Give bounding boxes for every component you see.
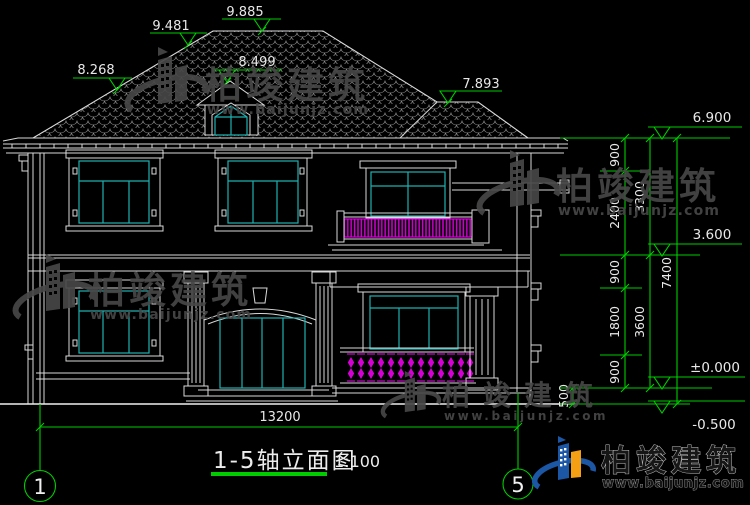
level-ground-text: ±0.000 <box>690 360 740 376</box>
level-second-floor: 3.600 <box>648 227 742 256</box>
title-underline <box>211 472 327 476</box>
corbel-right-3 <box>531 345 541 362</box>
dim-left-upper: 9.481 <box>152 19 189 34</box>
watermark-url: www.baijunjz.com <box>558 203 720 219</box>
entrance-steps <box>186 390 338 401</box>
watermark-bottom: 柏竣建筑 www.baijunjz.com <box>383 371 608 423</box>
logo-tower-orange <box>571 450 581 478</box>
balcony-door-2f <box>360 161 456 218</box>
level-site: -0.500 <box>648 401 745 433</box>
brand-name: 柏竣建筑 <box>601 444 741 479</box>
corbel-right-1 <box>531 210 541 227</box>
cad-elevation-canvas: 9.885 9.481 8.268 8.499 7.893 <box>0 0 750 505</box>
watermark-left: 柏竣建筑 www.baijunjz.com <box>16 254 253 323</box>
pilaster-capital-right <box>312 272 336 283</box>
corbel-right-2 <box>531 283 541 300</box>
watermark-logo-icon <box>480 150 558 213</box>
dim-900-top: 900 <box>607 143 622 167</box>
window-2f-mid <box>215 150 312 231</box>
window-2f-left <box>66 150 163 231</box>
level-2f-text: 3.600 <box>693 227 732 243</box>
watermark-logo-icon <box>16 254 94 317</box>
dim-900-mid: 900 <box>607 260 622 284</box>
dim-left-lower: 8.268 <box>77 63 114 78</box>
corbel-left-top <box>19 155 28 171</box>
corbel-left-base <box>25 345 33 359</box>
level-ground: ±0.000 <box>648 360 745 389</box>
level-eave: 6.900 <box>648 110 742 139</box>
keystone <box>253 288 267 303</box>
brand-url: www.baijunjz.com <box>602 476 744 491</box>
dim-ridge: 9.885 <box>226 5 263 20</box>
dim-3600: 3600 <box>632 306 647 338</box>
window-1f-porch <box>358 284 470 352</box>
level-site-text: -0.500 <box>692 417 736 433</box>
brand-logo-color: 柏竣建筑 www.baijunjz.com <box>535 436 745 491</box>
watermark-brand: 柏竣建筑 <box>442 379 606 412</box>
drawing-scale: 1:100 <box>334 452 380 471</box>
watermark-brand: 柏竣建筑 <box>205 64 369 107</box>
elevation-drawing: 9.885 9.481 8.268 8.499 7.893 <box>0 0 750 505</box>
dim-900-bottom: 900 <box>607 360 622 384</box>
axis-1-label: 1 <box>33 475 46 499</box>
dim-7400: 7400 <box>659 257 674 289</box>
title-block: 1-5轴立面图 1:100 <box>211 448 380 476</box>
watermark-url: www.baijunjz.com <box>444 409 608 423</box>
axis-5-label: 5 <box>511 473 524 497</box>
watermark-right: 柏竣建筑 www.baijunjz.com <box>480 150 721 219</box>
dim-overall-width: 13200 <box>259 410 300 425</box>
dim-1800: 1800 <box>607 306 622 338</box>
eave-fascia <box>3 138 568 153</box>
eave-dentils <box>12 144 558 148</box>
logo-flag <box>558 436 566 443</box>
watermark-brand: 柏竣建筑 <box>88 269 252 312</box>
watermark-brand: 柏竣建筑 <box>556 165 720 208</box>
watermark-url: www.baijunjz.com <box>90 307 252 323</box>
logo-tower-blue <box>558 443 569 480</box>
watermark-url: www.baijunjz.com <box>207 102 369 118</box>
dim-right-ridge: 7.893 <box>462 77 499 92</box>
entrance-door <box>220 318 305 388</box>
level-eave-text: 6.900 <box>693 110 732 126</box>
